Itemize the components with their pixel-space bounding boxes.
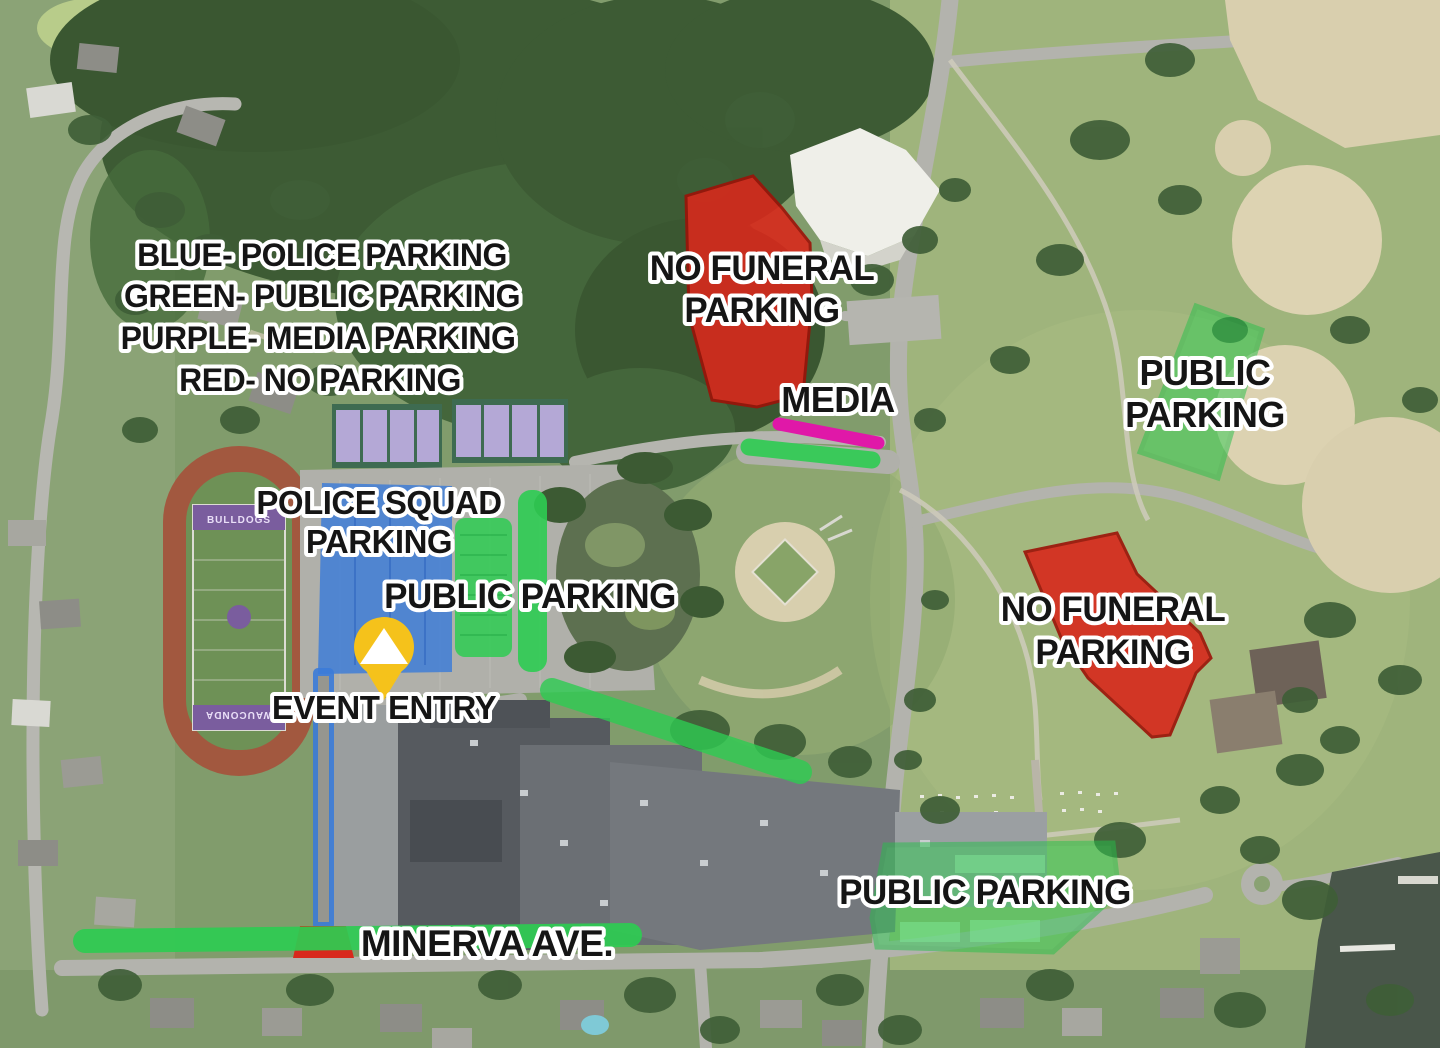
south-endzone-text: WAUCONDA bbox=[205, 709, 273, 720]
label-media: MEDIA bbox=[781, 379, 895, 420]
church-parking-lot bbox=[847, 295, 942, 345]
legend-line-purple: PURPLE- MEDIA PARKING bbox=[121, 320, 516, 356]
legend-line-red: RED- NO PARKING bbox=[179, 362, 461, 398]
label-public-parking-south: PUBLIC PARKING bbox=[839, 873, 1131, 912]
backyard-pool bbox=[581, 1015, 609, 1035]
label-public-parking-center: PUBLIC PARKING bbox=[384, 577, 676, 616]
label-minerva-ave: MINERVA AVE. bbox=[361, 923, 613, 964]
label-no-funeral-south-2: PARKING bbox=[1035, 633, 1190, 672]
map-canvas: BULLDOGS WAUCONDA bbox=[0, 0, 1440, 1048]
label-public-parking-east-2: PARKING bbox=[1125, 394, 1285, 435]
label-no-funeral-south-1: NO FUNERAL bbox=[1001, 590, 1226, 629]
label-police-squad-1: POLICE SQUAD bbox=[256, 484, 501, 521]
midfield-logo bbox=[227, 605, 251, 629]
legend-line-green: GREEN- PUBLIC PARKING bbox=[124, 278, 520, 314]
annotated-satellite-map: BULLDOGS WAUCONDA bbox=[0, 0, 1440, 1048]
label-public-parking-east-1: PUBLIC bbox=[1140, 352, 1272, 393]
label-no-funeral-north-2: PARKING bbox=[684, 291, 839, 330]
label-police-squad-2: PARKING bbox=[306, 523, 452, 560]
label-no-funeral-north-1: NO FUNERAL bbox=[650, 249, 875, 288]
label-event-entry: EVENT ENTRY bbox=[272, 689, 497, 726]
legend-line-blue: BLUE- POLICE PARKING bbox=[137, 237, 507, 273]
